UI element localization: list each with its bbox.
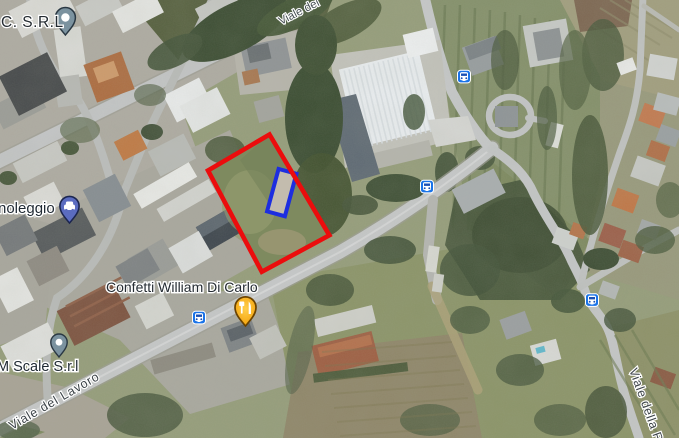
svg-text:Confetti William Di Carlo: Confetti William Di Carlo [106,279,258,295]
svg-text:M Scale S.r.l: M Scale S.r.l [0,359,78,375]
svg-text:noleggio: noleggio [0,200,55,217]
svg-text:C. S.R.L: C. S.R.L [1,14,64,31]
